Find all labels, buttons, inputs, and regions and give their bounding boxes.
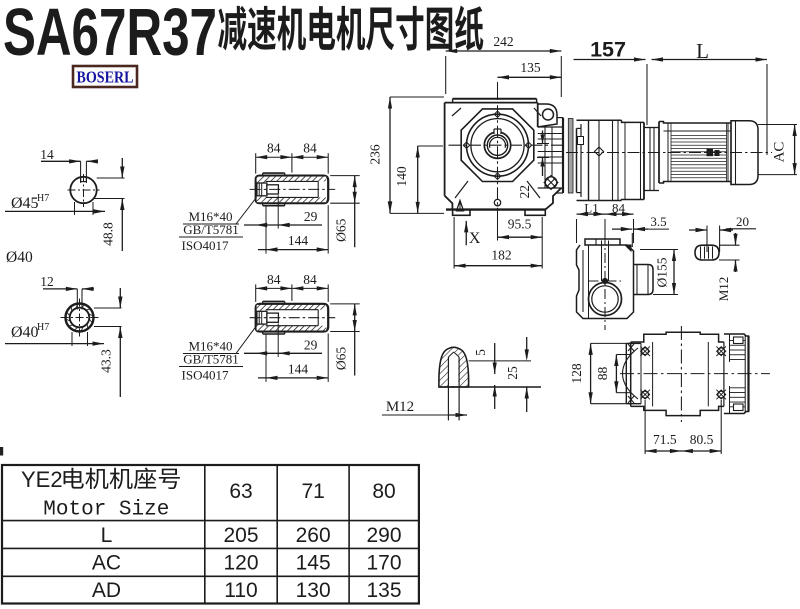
svg-text:43.3: 43.3	[99, 349, 114, 373]
svg-text:71: 71	[301, 480, 324, 503]
svg-text:236: 236	[368, 144, 383, 165]
svg-text:AC: AC	[92, 552, 121, 575]
svg-text:260: 260	[296, 524, 331, 547]
svg-text:242: 242	[493, 34, 513, 49]
svg-text:135: 135	[366, 579, 401, 602]
svg-text:290: 290	[366, 524, 401, 547]
svg-text:YE2: YE2	[21, 467, 63, 492]
svg-text:X: X	[469, 230, 481, 247]
svg-text:25: 25	[505, 366, 520, 380]
svg-text:128: 128	[569, 363, 584, 384]
svg-text:SA67R37: SA67R37	[3, 0, 217, 70]
svg-text:144: 144	[288, 361, 309, 376]
svg-text:71.5: 71.5	[653, 432, 677, 447]
svg-text:170: 170	[366, 552, 401, 575]
svg-text:GB/T5781: GB/T5781	[183, 352, 239, 367]
svg-text:Ø40: Ø40	[6, 249, 33, 266]
svg-text:14: 14	[40, 147, 54, 162]
svg-text:22: 22	[517, 185, 532, 199]
svg-text:80.5: 80.5	[690, 432, 714, 447]
svg-text:Ø65: Ø65	[334, 347, 349, 370]
svg-text:M12: M12	[386, 399, 414, 415]
svg-text:120: 120	[223, 552, 258, 575]
svg-text:157: 157	[590, 38, 626, 62]
svg-text:ISO4017: ISO4017	[182, 368, 229, 383]
svg-text:L: L	[101, 524, 113, 547]
svg-text:84: 84	[303, 272, 317, 287]
svg-text:ISO4017: ISO4017	[182, 238, 229, 253]
svg-text:84: 84	[267, 272, 281, 287]
svg-text:130: 130	[296, 579, 331, 602]
svg-text:29: 29	[304, 338, 318, 353]
svg-text:48.8: 48.8	[101, 222, 116, 246]
svg-text:88: 88	[595, 367, 610, 381]
svg-text:H7: H7	[37, 193, 49, 204]
svg-text:12: 12	[40, 274, 54, 289]
svg-text:135: 135	[520, 60, 541, 75]
svg-text:Ø45: Ø45	[11, 195, 39, 212]
svg-text:84: 84	[267, 141, 281, 156]
svg-text:20: 20	[736, 214, 749, 229]
svg-text:Motor Size: Motor Size	[43, 499, 169, 522]
svg-text:63: 63	[229, 480, 252, 503]
svg-text:95.5: 95.5	[508, 217, 532, 232]
svg-text:140: 140	[394, 166, 409, 187]
svg-text:3.5: 3.5	[650, 214, 666, 229]
svg-text:BOSERL: BOSERL	[77, 68, 134, 87]
svg-text:84: 84	[303, 141, 317, 156]
svg-text:29: 29	[304, 209, 318, 224]
svg-text:GB/T5781: GB/T5781	[183, 222, 239, 237]
svg-text:145: 145	[296, 552, 331, 575]
svg-text:AD: AD	[92, 579, 121, 602]
svg-text:205: 205	[223, 524, 258, 547]
svg-text:182: 182	[491, 248, 511, 263]
svg-text:H7: H7	[37, 322, 49, 333]
svg-text:144: 144	[288, 233, 309, 248]
svg-text:Ø40: Ø40	[11, 324, 39, 341]
svg-text:M12: M12	[716, 277, 731, 302]
svg-text:80: 80	[372, 480, 395, 503]
svg-text:AC: AC	[772, 142, 788, 163]
svg-text:Ø155: Ø155	[655, 257, 670, 287]
svg-text:5: 5	[473, 349, 488, 356]
svg-text:110: 110	[224, 579, 257, 602]
svg-text:Ø65: Ø65	[334, 218, 349, 241]
